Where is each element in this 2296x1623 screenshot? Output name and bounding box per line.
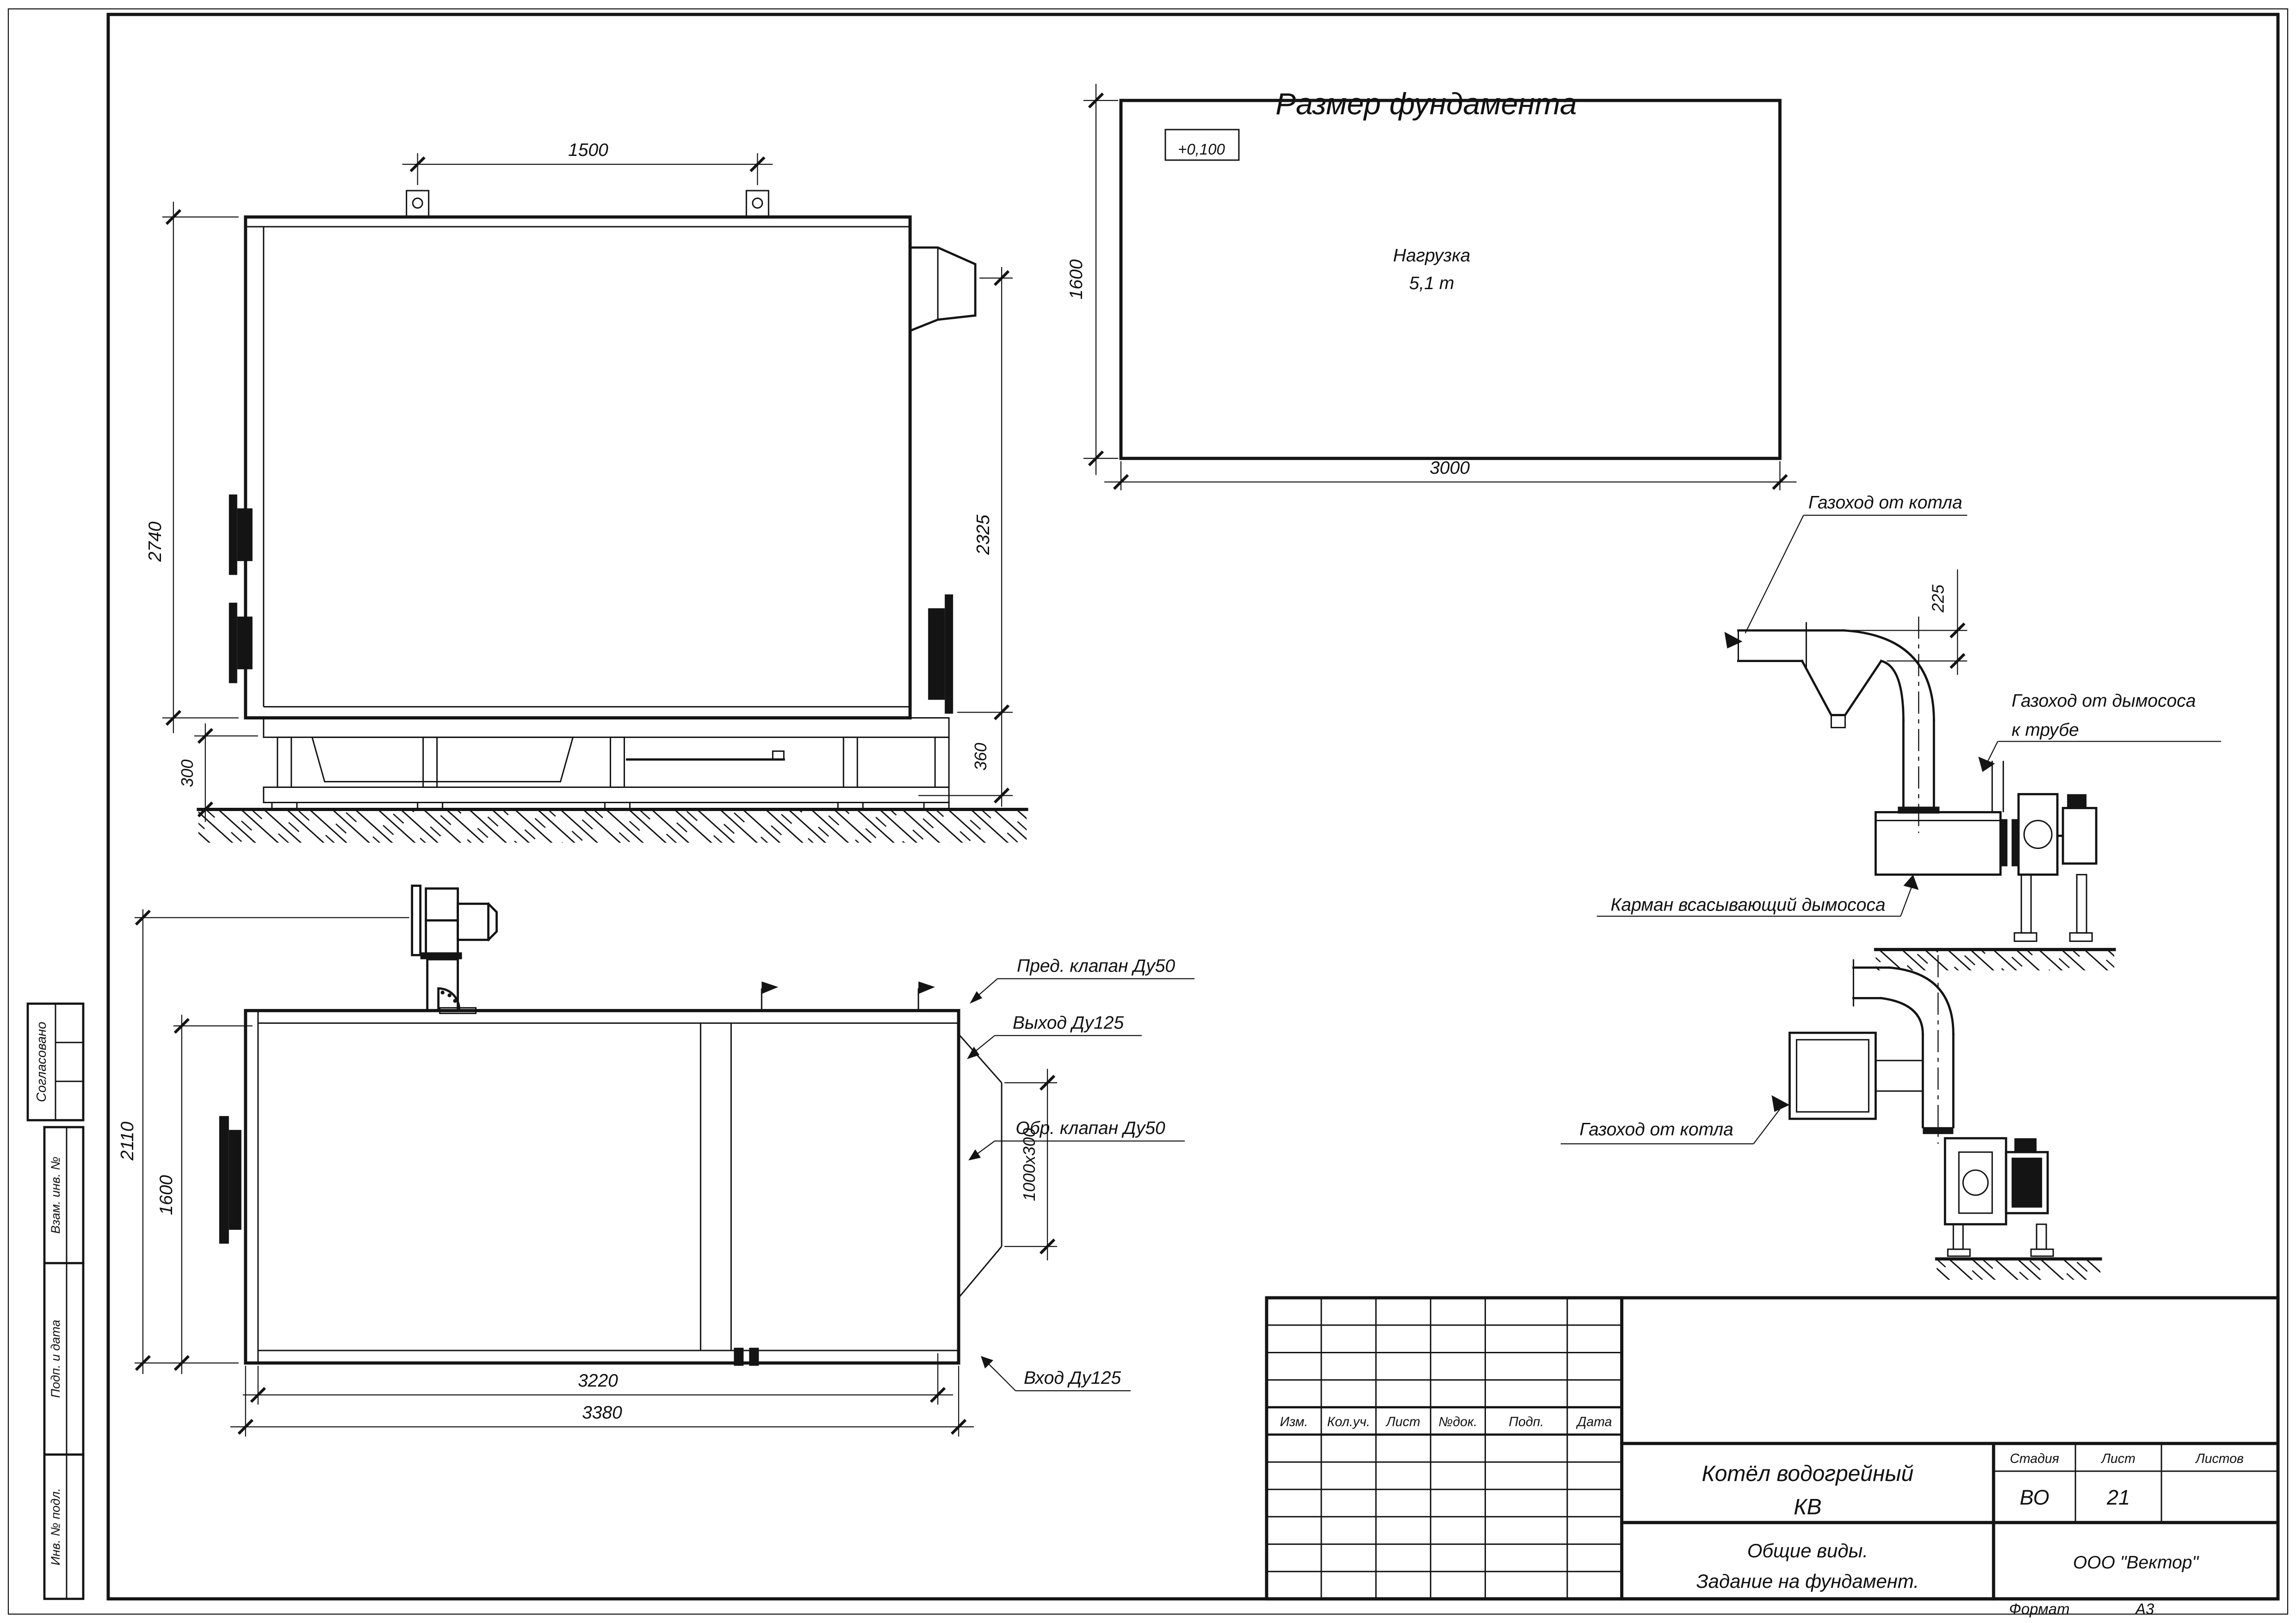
left-margin-stamps: Согласовано Взам. инв. № Подп. и дата Ин… [28, 1004, 83, 1598]
dim-plan-outer-height: 2110 [118, 1121, 137, 1161]
company-name: ООО "Вектор" [2073, 1553, 2199, 1573]
side-hatch-upper [229, 495, 253, 575]
plan-hatch-left [219, 1116, 241, 1244]
doc-name-line2: КВ [1794, 1495, 1821, 1519]
rev-header-podp: Подп. [1509, 1414, 1544, 1429]
dim-lug-spacing: 1500 [568, 140, 608, 160]
side-hatch-lower [229, 603, 253, 683]
foundation-plan: +0,100 Нагрузка 5,1 т 1600 3000 [1066, 84, 1796, 490]
dim-outlet-height: 2325 [973, 514, 993, 555]
load-value-line1: Нагрузка [1393, 246, 1470, 266]
label-inlet: Вход Ду125 [981, 1356, 1131, 1391]
exhaust-fan-lower [1945, 1138, 2053, 1256]
outlet-wedge [959, 1034, 1002, 1298]
gas-outlet-duct [910, 248, 975, 331]
ash-funnel [1802, 661, 1881, 728]
stamp-replace-inv-label: Взам. инв. № [49, 1157, 62, 1234]
svg-text:Газоход от дымососа: Газоход от дымососа [2011, 691, 2196, 711]
drawing-sheet: Согласовано Взам. инв. № Подп. и дата Ин… [0, 0, 2296, 1623]
dim-base-left: 300 [178, 760, 197, 787]
svg-text:Газоход от котла: Газоход от котла [1808, 493, 1962, 513]
label-flue-from-boiler-lower: Газоход от котла [1561, 1109, 1780, 1144]
format-value: А3 [2135, 1600, 2154, 1617]
rev-header-ndoc: №док. [1439, 1414, 1478, 1429]
stamp-sign-date-label: Подп. и дата [49, 1320, 62, 1398]
ground-hatch-side [198, 810, 1027, 843]
title-block: Изм. Кол.уч. Лист №док. Подп. Дата Котёл… [1267, 1298, 2278, 1599]
elevation-mark: +0,100 [1178, 141, 1225, 158]
label-check-valve: Обр. клапан Ду50 [968, 1118, 1185, 1160]
svg-text:Обр. клапан Ду50: Обр. клапан Ду50 [1015, 1118, 1165, 1138]
page-title: Размер фундамента [1275, 87, 1577, 121]
svg-text:Пред. клапан Ду50: Пред. клапан Ду50 [1017, 956, 1175, 976]
svg-text:к трубе: к трубе [2011, 720, 2079, 740]
subtitle-line1: Общие виды. [1747, 1540, 1868, 1561]
stage-label: Стадия [2010, 1451, 2059, 1466]
connection-flag-1 [761, 981, 778, 1010]
lifting-lug-left [407, 191, 429, 217]
sheet-number: 21 [2106, 1486, 2130, 1509]
format-note: Формат А3 [2009, 1600, 2154, 1617]
rev-header-koluch: Кол.уч. [1327, 1414, 1370, 1429]
subtitle-line2: Задание на фундамент. [1696, 1570, 1919, 1592]
svg-text:Газоход от котла: Газоход от котла [1579, 1120, 1733, 1140]
dim-base-right: 360 [971, 743, 990, 771]
svg-text:Карман всасывающий дымососа: Карман всасывающий дымососа [1610, 895, 1885, 915]
sheets-label: Листов [2195, 1451, 2244, 1466]
dim-plan-outer-width: 3380 [582, 1403, 622, 1423]
smoke-exhauster-top [412, 886, 497, 1013]
format-label: Формат [2009, 1600, 2070, 1617]
label-safety-valve: Пред. клапан Ду50 [970, 956, 1194, 1004]
stamp-inv-orig-label: Инв. № подл. [49, 1488, 62, 1565]
svg-text:Выход Ду125: Выход Ду125 [1013, 1013, 1124, 1033]
side-bracket-right [928, 595, 953, 714]
svg-text:Вход Ду125: Вход Ду125 [1024, 1368, 1121, 1388]
dim-plan-inner-height: 1600 [156, 1175, 176, 1215]
flow-arrow-lower-inlet [1771, 1095, 1789, 1112]
connection-flag-2 [918, 981, 935, 1010]
boiler-outlet-box [1789, 1033, 1923, 1119]
flue-duct-upper: Газоход от котла 225 [1597, 493, 2221, 971]
label-outlet: Выход Ду125 [967, 1013, 1142, 1059]
stamp-agreed-label: Согласовано [34, 1022, 49, 1102]
support-frame [264, 718, 949, 810]
rev-header-list: Лист [1386, 1414, 1420, 1429]
dim-foundation-depth: 1600 [1066, 259, 1086, 299]
suction-pocket [1875, 807, 2018, 875]
boiler-side-view: 1500 2740 300 2325 360 [145, 140, 1027, 842]
ground-hatch-lower-duct [1937, 1259, 2100, 1280]
doc-name-line1: Котёл водогрейный [1702, 1462, 1913, 1486]
dim-boiler-height: 2740 [145, 521, 165, 562]
exhaust-fan-upper [2014, 794, 2096, 942]
dim-outlet-size: 1000x300 [1020, 1128, 1039, 1201]
lifting-lug-right [746, 191, 768, 217]
sheet-label: Лист [2100, 1451, 2135, 1466]
dim-duct-offset: 225 [1928, 584, 1947, 613]
label-flue-to-stack: Газоход от дымососа к трубе [1988, 691, 2221, 761]
dim-plan-inner-width: 3220 [578, 1371, 618, 1391]
label-suction-pocket: Карман всасывающий дымососа [1597, 874, 1919, 916]
ground-hatch-upper-duct [1875, 949, 2114, 970]
load-value-line2: 5,1 т [1409, 273, 1454, 293]
rev-header-data: Дата [1576, 1414, 1612, 1429]
flow-arrow-upper-inlet [1724, 632, 1742, 649]
dim-foundation-width: 3000 [1430, 458, 1470, 478]
flue-duct-lower: Газоход от котла [1561, 955, 2101, 1280]
boiler-plan-view: 2110 1600 3220 3380 1000x300 Пред. клапа… [118, 886, 1194, 1437]
stage-value: ВО [2020, 1486, 2049, 1509]
rev-header-izm: Изм. [1280, 1414, 1308, 1429]
